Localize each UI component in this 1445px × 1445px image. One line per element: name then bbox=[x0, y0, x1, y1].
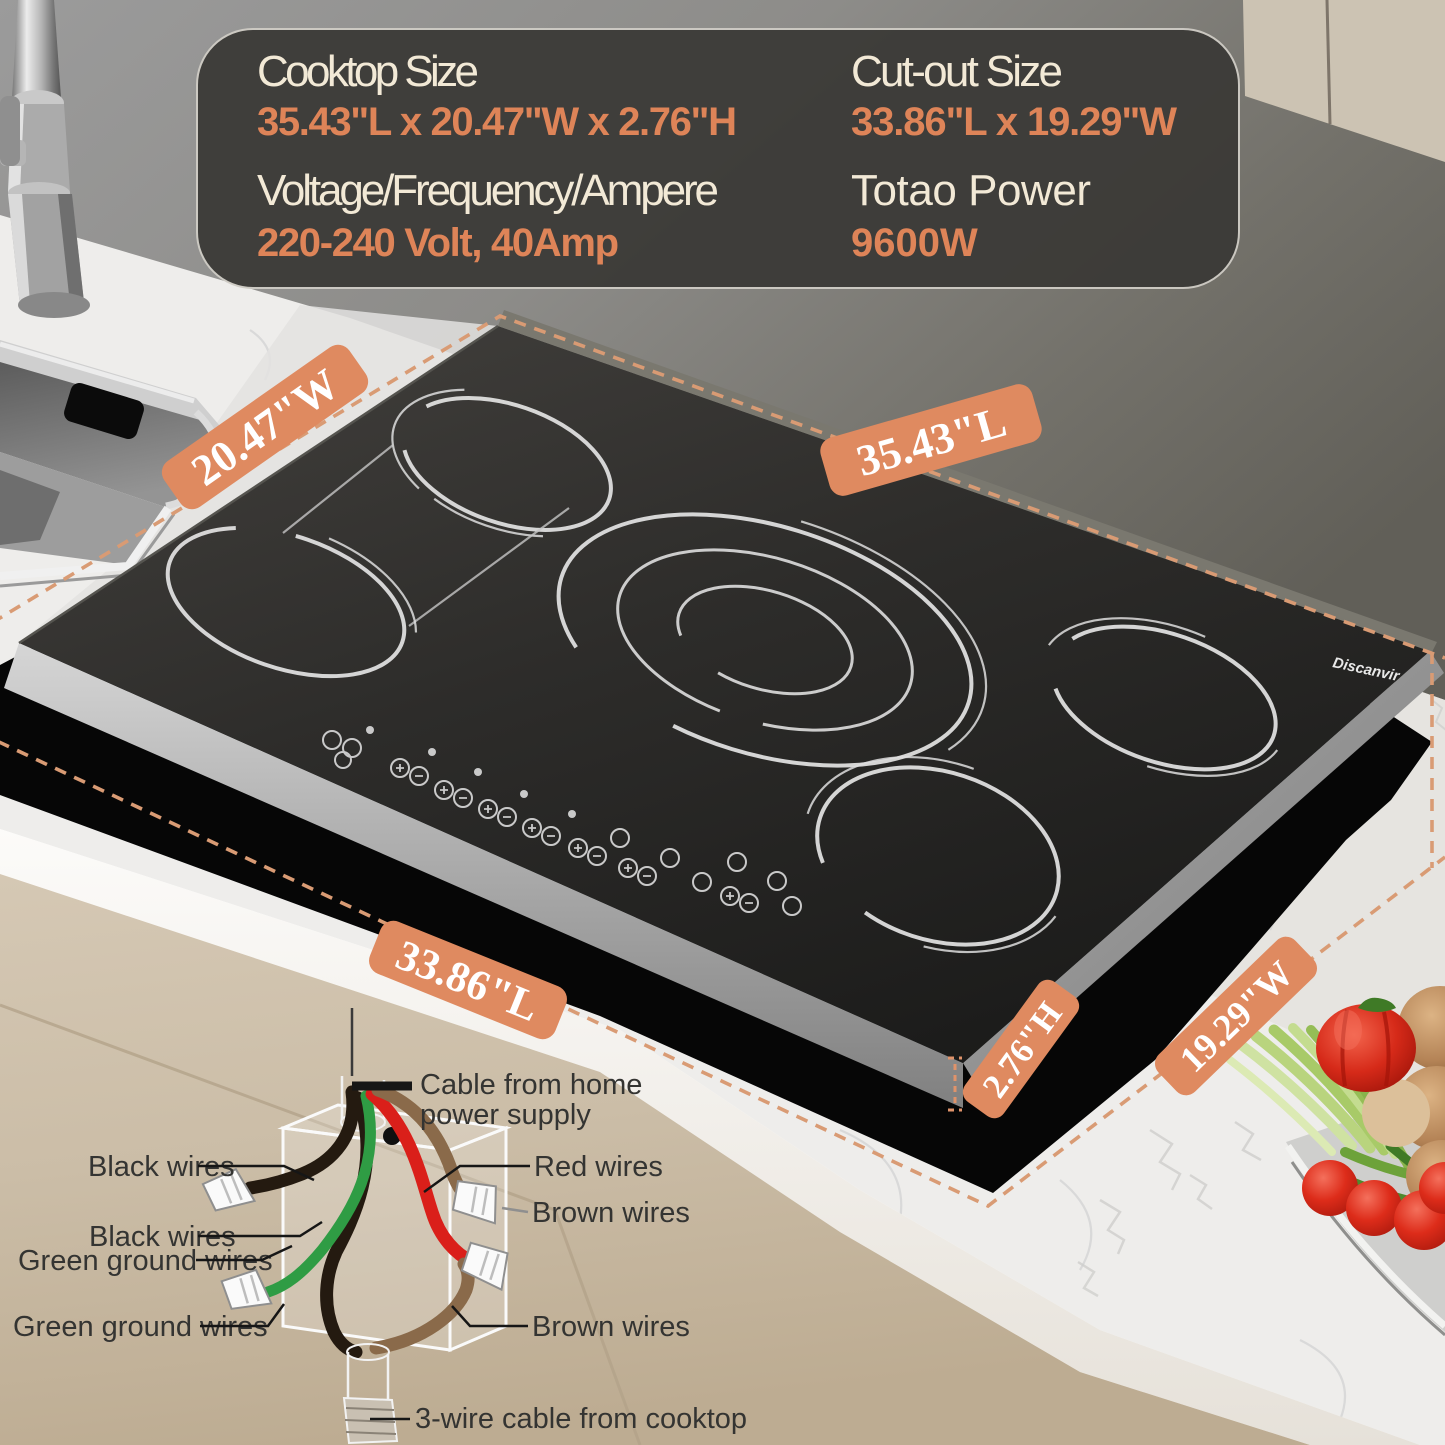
svg-text:power supply: power supply bbox=[420, 1099, 591, 1131]
svg-text:Brown wires: Brown wires bbox=[532, 1311, 690, 1343]
svg-text:3-wire cable from cooktop: 3-wire cable from cooktop bbox=[415, 1403, 747, 1435]
svg-text:Cooktop Size: Cooktop Size bbox=[257, 47, 479, 96]
svg-text:Voltage/Frequency/Ampere: Voltage/Frequency/Ampere bbox=[257, 166, 719, 215]
svg-text:Cable from home: Cable from home bbox=[420, 1069, 642, 1101]
svg-text:9600W: 9600W bbox=[851, 221, 978, 265]
svg-text:Red wires: Red wires bbox=[534, 1151, 663, 1183]
svg-text:33.86"L x 19.29"W: 33.86"L x 19.29"W bbox=[851, 100, 1177, 144]
svg-text:Brown wires: Brown wires bbox=[532, 1197, 690, 1229]
svg-text:Cut-out Size: Cut-out Size bbox=[851, 47, 1063, 96]
svg-text:Totao Power: Totao Power bbox=[851, 166, 1091, 215]
svg-text:220-240 Volt, 40Amp: 220-240 Volt, 40Amp bbox=[257, 221, 619, 265]
svg-text:35.43"L x 20.47"W x 2.76"H: 35.43"L x 20.47"W x 2.76"H bbox=[257, 100, 737, 144]
